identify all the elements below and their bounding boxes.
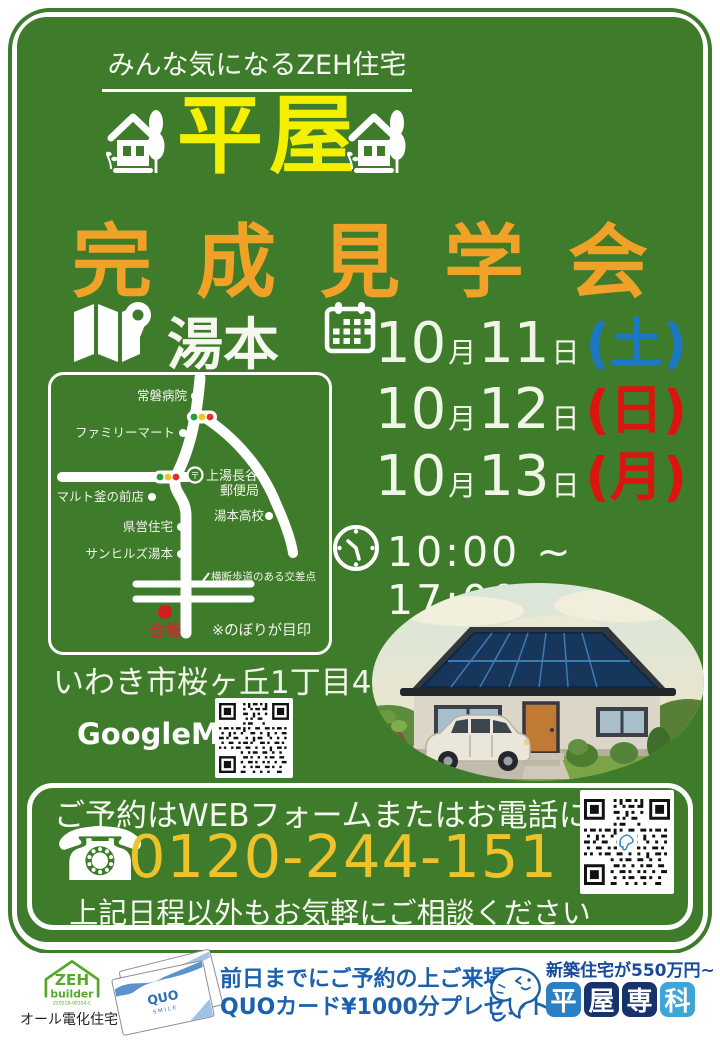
pin-hole <box>133 310 144 321</box>
date-row-1: 10月11日(土) <box>375 302 687 378</box>
map-label-housing: 県営住宅 <box>123 519 173 534</box>
main-title: 平屋 <box>177 91 361 181</box>
map-label-hospital: 常磐病院 <box>137 388 188 403</box>
road-cross <box>136 584 251 599</box>
date-weekday: (土) <box>586 302 687 378</box>
house-photo <box>372 583 704 781</box>
date-month-unit: 月 <box>446 397 478 437</box>
date-day: 12 <box>478 377 549 442</box>
date-row-3: 10月13日(月) <box>375 435 687 511</box>
googlemap-qr-code <box>215 698 293 778</box>
post-office-mark: 〒 <box>190 472 199 482</box>
flyer-poster: みんな気になるZEH住宅 平屋 完成見学会 湯本 <box>0 0 720 1040</box>
hiraya-senka-logo: 平 屋 専 科 <box>546 982 695 1017</box>
brand-char: 科 <box>660 982 695 1017</box>
qr-center-logo <box>617 832 637 852</box>
date-day-unit: 日 <box>550 331 582 371</box>
event-subtitle: 完成見学会 <box>17 198 703 314</box>
house-tree-icon <box>347 107 413 177</box>
footer-bar: ZEH builder Z2021B-00354-C オール電化住宅 QUO S… <box>0 953 720 1040</box>
date-month: 10 <box>375 444 446 509</box>
map-label-crossing: 横断歩道のある交差点 <box>211 570 316 583</box>
map-label-venue: 会場 <box>149 621 181 640</box>
folded-map-icon <box>72 298 156 364</box>
date-day: 11 <box>478 311 549 376</box>
header-tagline: みんな気になるZEH住宅 <box>102 43 412 92</box>
venue-address: いわき市桜ヶ丘1丁目47 <box>53 657 391 702</box>
calendar-icon <box>323 301 377 355</box>
zeh-builder-logo: ZEH builder Z2021B-00354-C <box>36 956 108 1010</box>
reservation-qr-code <box>580 790 674 894</box>
reservation-box: ご予約はWEBフォームまたはお電話にて ☎ 0120-244-151 上記日程以… <box>27 783 693 930</box>
ray-mascot <box>484 961 546 1029</box>
poster-green-panel: みんな気になるZEH住宅 平屋 完成見学会 湯本 <box>17 17 703 942</box>
clock-icon <box>330 522 382 574</box>
reservation-note: 上記日程以外もお気軽にご相談ください <box>32 890 628 932</box>
date-day-unit: 日 <box>550 397 582 437</box>
map-label-sunhills: サンヒルズ湯本 <box>85 546 173 561</box>
map-label-post1: 上湯長谷 <box>206 469 258 484</box>
map-label-school: 湯本高校 <box>214 508 265 523</box>
map-label-conveni: ファミリーマート <box>75 425 175 440</box>
house-tree-icon <box>106 107 172 177</box>
venue-dot <box>158 605 172 619</box>
zeh-text: ZEH <box>55 971 89 989</box>
date-month-unit: 月 <box>446 464 478 504</box>
traffic-light-icon <box>187 411 217 424</box>
phone-number: 0120-244-151 <box>128 822 558 891</box>
promo-line-1: 前日までにご予約の上ご来場で <box>220 966 504 994</box>
brand-char: 屋 <box>584 982 619 1017</box>
quo-promo-text: 前日までにご予約の上ご来場で QUOカード¥1000分プレゼント <box>220 966 504 1021</box>
date-month: 10 <box>375 311 446 376</box>
date-month: 10 <box>375 377 446 442</box>
quo-card-images: QUO SMILE <box>112 957 224 1037</box>
map-label-shop: マルト釜の前店 <box>56 489 144 504</box>
price-ribbon: 新築住宅が550万円~ <box>546 956 694 981</box>
map-label-note: ※のぼりが目印 <box>212 622 311 639</box>
date-weekday: (月) <box>586 435 687 511</box>
date-day: 13 <box>478 444 549 509</box>
location-name: 湯本 <box>167 300 279 381</box>
zeh-cert-number: Z2021B-00354-C <box>53 1001 91 1007</box>
date-row-2: 10月12日(日) <box>375 368 687 444</box>
date-day-unit: 日 <box>550 464 582 504</box>
all-electric-label: オール電化住宅 <box>20 1009 118 1029</box>
date-weekday: (日) <box>586 368 687 444</box>
brand-char: 平 <box>546 982 581 1017</box>
map-label-post2: 郵便局 <box>220 484 259 499</box>
promo-line-2: QUOカード¥1000分プレゼント <box>220 994 504 1022</box>
date-month-unit: 月 <box>446 331 478 371</box>
builder-text: builder <box>50 987 94 1000</box>
access-map: 常磐病院 ファミリーマート マルト釜の前店 県営住宅 サンヒルズ湯本 湯本高校 … <box>48 372 332 655</box>
brand-char: 専 <box>622 982 657 1017</box>
traffic-light-icon <box>153 471 183 484</box>
